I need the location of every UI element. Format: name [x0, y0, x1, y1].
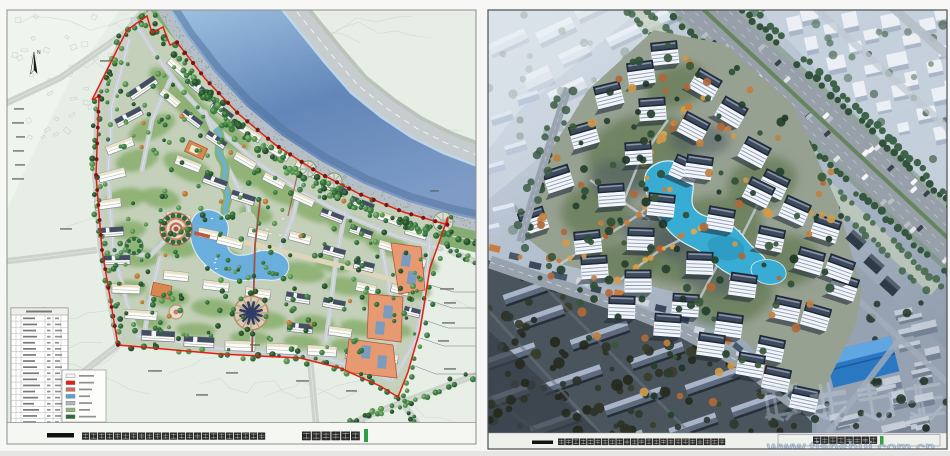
svg-text:N: N	[37, 50, 41, 56]
